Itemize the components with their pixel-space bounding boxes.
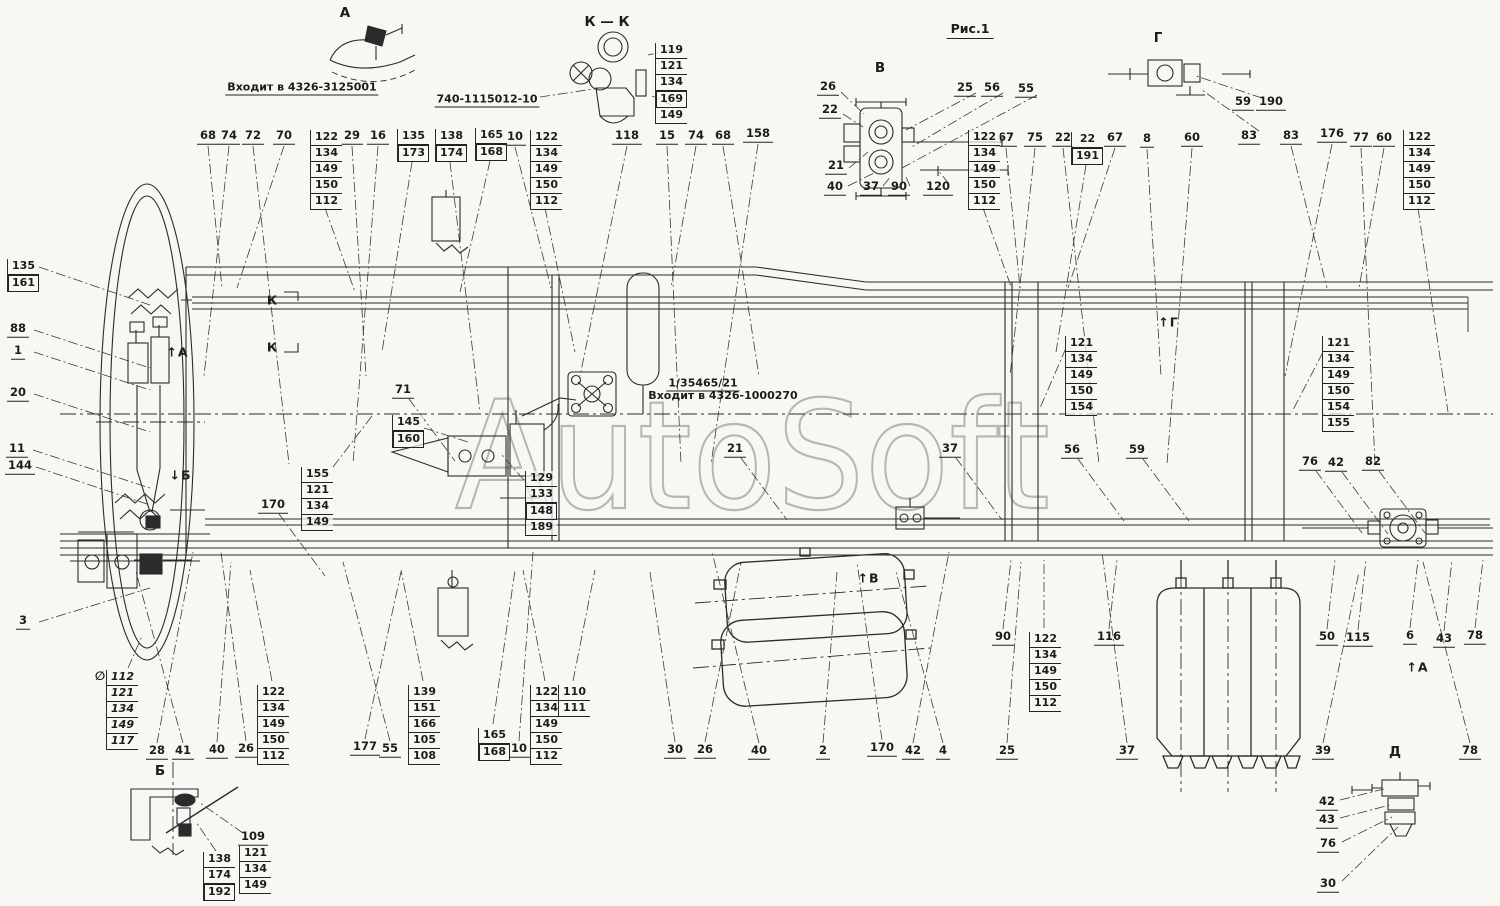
part-number: 149 xyxy=(969,162,1000,178)
part-number: 112 xyxy=(531,749,562,765)
part-number: 122 xyxy=(1404,130,1435,146)
callout-72: 72 xyxy=(242,130,264,145)
part-number: 149 xyxy=(656,108,687,124)
part-number: 149 xyxy=(1066,368,1097,384)
part-number: 149 xyxy=(240,878,271,894)
callout-68: 68 xyxy=(712,130,734,145)
part-number: 149 xyxy=(258,717,289,733)
callout-71: 71 xyxy=(392,384,414,399)
part-number: 165 xyxy=(476,128,507,144)
part-ref-stack: 165168 xyxy=(478,728,510,761)
part-ref-stack: 129133148189 xyxy=(525,471,557,536)
part-number: 174 xyxy=(436,145,467,162)
callout-158: 158 xyxy=(743,128,773,143)
part-number: 134 xyxy=(1066,352,1097,368)
callout-2: 2 xyxy=(816,745,830,760)
callout-26: 26 xyxy=(235,743,257,758)
callout-83: 83 xyxy=(1280,130,1302,145)
part-number: 117 xyxy=(107,734,138,750)
part-number: 151 xyxy=(409,701,440,717)
callout-37: 37 xyxy=(1116,745,1138,760)
part-number: 112 xyxy=(311,194,342,210)
callout-21: 21 xyxy=(724,443,746,458)
part-number: 122 xyxy=(311,130,342,146)
part-number: 161 xyxy=(8,275,39,292)
callout-78: 78 xyxy=(1459,745,1481,760)
callout-1: 1 xyxy=(11,345,25,360)
part-number: 112 xyxy=(1030,696,1061,712)
part-ref-stack: 122134149150112 xyxy=(257,685,289,765)
part-number: 155 xyxy=(1323,416,1354,432)
air-receiver-vertical-bank xyxy=(1157,560,1300,768)
section-mark-К: К xyxy=(267,340,277,355)
callout-8: 8 xyxy=(1140,133,1154,148)
up-arrow-icon: ↑ xyxy=(1158,315,1168,330)
part-number: 154 xyxy=(1323,400,1354,416)
part-ref-stack: 122134149150112 xyxy=(1403,130,1435,210)
callout-170: 170 xyxy=(867,742,897,757)
callout-50: 50 xyxy=(1316,631,1338,646)
frame-bottom-rail xyxy=(60,541,1493,555)
callout-40: 40 xyxy=(824,181,846,196)
part-number: 165 xyxy=(479,728,510,744)
callout-37: 37 xyxy=(860,181,882,196)
view-label-А: А xyxy=(340,5,350,21)
view-label-В: В xyxy=(875,60,885,76)
callout-42: 42 xyxy=(1325,457,1347,472)
part-number: 149 xyxy=(531,162,562,178)
part-ref-stack: 119121134169149 xyxy=(655,43,687,124)
callout-76: 76 xyxy=(1299,456,1321,471)
part-number: 129 xyxy=(526,471,557,487)
part-number: 150 xyxy=(1404,178,1435,194)
part-number: 134 xyxy=(107,702,138,718)
part-ref-stack: 122134149150112 xyxy=(310,130,342,210)
part-ref-stack: 165168 xyxy=(475,128,507,161)
part-ref-stack: 121134149150154 xyxy=(1065,336,1097,416)
arrow-letter: Б xyxy=(181,468,191,483)
part-number: 134 xyxy=(258,701,289,717)
air-receiver-horizontal xyxy=(712,548,916,707)
section-mark-К: К xyxy=(267,293,277,308)
callout-177: 177 xyxy=(350,741,380,756)
view-kk-assembly xyxy=(570,32,646,123)
part-number: 134 xyxy=(1030,648,1061,664)
part-number: 122 xyxy=(969,130,1000,146)
part-number: 148 xyxy=(526,503,557,520)
callout-39: 39 xyxy=(1312,745,1334,760)
part-number: 112 xyxy=(1404,194,1435,210)
part-ref-stack: 138174192 xyxy=(203,852,235,901)
callout-78: 78 xyxy=(1464,630,1486,645)
view-label-Б: Б xyxy=(155,763,165,779)
callout-30: 30 xyxy=(664,744,686,759)
part-ref-stack: 145160 xyxy=(392,415,424,448)
part-number: 189 xyxy=(526,520,557,536)
part-ref-stack: 135161 xyxy=(7,259,39,292)
callout-42: 42 xyxy=(1316,796,1338,811)
part-number: 150 xyxy=(969,178,1000,194)
callout-68: 68 xyxy=(197,130,219,145)
callout-29: 29 xyxy=(341,130,363,145)
drawing-note: Входит в 4326-1000270 xyxy=(646,389,799,403)
part-number: 149 xyxy=(311,162,342,178)
view-b-bracket-detail xyxy=(131,787,238,855)
arrow-letter: Г xyxy=(1170,315,1178,330)
part-number: 134 xyxy=(302,499,333,515)
figure-caption: Рис.1 xyxy=(947,21,994,39)
callout-40: 40 xyxy=(206,744,228,759)
pipe-bundle-bottom xyxy=(205,519,1490,525)
part-number: 150 xyxy=(258,733,289,749)
part-number: 173 xyxy=(398,145,429,162)
view-d-assembly xyxy=(1352,772,1430,836)
view-label-К—К: К — К xyxy=(585,14,630,30)
callout-77: 77 xyxy=(1350,132,1372,147)
part-number: 150 xyxy=(1030,680,1061,696)
callout-26: 26 xyxy=(817,81,839,96)
part-number: 135 xyxy=(8,259,39,275)
callout-90: 90 xyxy=(888,181,910,196)
part-number: 149 xyxy=(531,717,562,733)
part-number: 121 xyxy=(302,483,333,499)
callout-109: 109 xyxy=(238,831,268,846)
part-number: 110 xyxy=(559,685,590,701)
part-number: 150 xyxy=(531,178,562,194)
callout-20: 20 xyxy=(7,387,29,402)
part-ref-stack: 22191 xyxy=(1071,132,1103,165)
callout-28: 28 xyxy=(146,745,168,760)
part-number: 134 xyxy=(311,146,342,162)
arrow-letter: А xyxy=(178,345,188,360)
part-number: 192 xyxy=(204,884,235,901)
direction-arrow-А: ↑А xyxy=(166,345,187,360)
part-ref-stack: 135173 xyxy=(397,129,429,162)
callout-190: 190 xyxy=(1256,96,1286,111)
callout-40: 40 xyxy=(748,745,770,760)
callout-176: 176 xyxy=(1317,128,1347,143)
callout-43: 43 xyxy=(1433,633,1455,648)
callout-82: 82 xyxy=(1362,456,1384,471)
up-arrow-icon: ↑ xyxy=(857,571,867,586)
callout-55: 55 xyxy=(1015,83,1037,98)
arrow-letter: А xyxy=(1418,660,1428,675)
view-a-assembly xyxy=(330,24,415,68)
part-ref-stack: 122134149150112 xyxy=(968,130,1000,210)
part-ref-stack: 121134149150154155 xyxy=(1322,336,1354,432)
part-number: 134 xyxy=(969,146,1000,162)
callout-30: 30 xyxy=(1317,878,1339,893)
part-ref-stack: 110111 xyxy=(558,685,590,717)
part-number: 121 xyxy=(240,846,271,862)
part-number: 138 xyxy=(436,129,467,145)
air-dryer-cylinder xyxy=(627,273,659,385)
part-number: 150 xyxy=(1066,384,1097,400)
part-number: 149 xyxy=(107,718,138,734)
callout-55: 55 xyxy=(379,743,401,758)
callout-26: 26 xyxy=(694,744,716,759)
callout-144: 144 xyxy=(5,460,35,475)
section-cut-marks xyxy=(284,292,298,352)
part-number: 166 xyxy=(409,717,440,733)
callout-116: 116 xyxy=(1094,631,1124,646)
part-number: 145 xyxy=(393,415,424,431)
part-number: 121 xyxy=(656,59,687,75)
callout-88: 88 xyxy=(7,323,29,338)
part-ref-stack: 138174 xyxy=(435,129,467,162)
callout-25: 25 xyxy=(996,745,1018,760)
part-number: 154 xyxy=(1066,400,1097,416)
callout-120: 120 xyxy=(923,181,953,196)
part-ref-stack: 122134149150112 xyxy=(1029,632,1061,712)
callout-115: 115 xyxy=(1343,632,1373,647)
part-number: 122 xyxy=(531,130,562,146)
callout-4: 4 xyxy=(936,745,950,760)
part-ref-stack: 155121134149 xyxy=(301,467,333,531)
callout-74: 74 xyxy=(218,130,240,145)
part-number: 112 xyxy=(107,670,138,686)
callout-60: 60 xyxy=(1181,132,1203,147)
hose-zigzag xyxy=(128,289,192,314)
callout-118: 118 xyxy=(612,130,642,145)
part-number: 150 xyxy=(311,178,342,194)
callout-56: 56 xyxy=(981,82,1003,97)
part-number: 112 xyxy=(258,749,289,765)
callout-11: 11 xyxy=(6,443,28,458)
leader-lines-generated xyxy=(33,144,1483,743)
drawing-note: Входит в 4326-3125001 xyxy=(225,81,378,96)
part-number: 149 xyxy=(1323,368,1354,384)
callout-90: 90 xyxy=(992,631,1014,646)
callout-59: 59 xyxy=(1126,444,1148,459)
drawing-note: 740-1115012-10 xyxy=(435,93,540,108)
part-number: 122 xyxy=(1030,632,1061,648)
callout-15: 15 xyxy=(656,130,678,145)
up-arrow-icon: ↑ xyxy=(1406,660,1416,675)
direction-arrow-В: ↑В xyxy=(857,571,878,586)
callout-42: 42 xyxy=(902,745,924,760)
callout-6: 6 xyxy=(1403,630,1417,645)
part-number: 119 xyxy=(656,43,687,59)
part-number: 111 xyxy=(559,701,590,717)
pipe-bundle-top xyxy=(192,297,1468,332)
part-number: 149 xyxy=(1030,664,1061,680)
callout-43: 43 xyxy=(1316,814,1338,829)
diameter-mark: ∅ xyxy=(95,669,105,683)
callout-83: 83 xyxy=(1238,130,1260,145)
callout-10: 10 xyxy=(508,743,530,758)
part-number: 22 xyxy=(1072,132,1103,148)
callout-76: 76 xyxy=(1317,838,1339,853)
callout-170: 170 xyxy=(258,499,288,514)
callout-75: 75 xyxy=(1024,132,1046,147)
part-number: 169 xyxy=(656,91,687,108)
callout-37: 37 xyxy=(939,443,961,458)
callout-67: 67 xyxy=(1104,132,1126,147)
part-number: 134 xyxy=(1323,352,1354,368)
view-label-Д: Д xyxy=(1389,744,1401,760)
part-number: 134 xyxy=(240,862,271,878)
down-arrow-icon: ↓ xyxy=(169,468,179,483)
direction-arrow-Г: ↑Г xyxy=(1158,315,1177,330)
view-label-Г: Г xyxy=(1154,30,1163,46)
part-ref-stack: 139151166105108 xyxy=(408,685,440,765)
callout-22: 22 xyxy=(819,104,841,119)
callout-3: 3 xyxy=(16,615,30,630)
arrow-letter: В xyxy=(869,571,879,586)
up-arrow-icon: ↑ xyxy=(166,345,176,360)
direction-arrow-Б: ↓Б xyxy=(169,468,190,483)
part-number: 121 xyxy=(107,686,138,702)
part-number: 134 xyxy=(656,75,687,91)
part-number: 168 xyxy=(476,144,507,161)
direction-arrow-А: ↑А xyxy=(1406,660,1427,675)
part-number: 134 xyxy=(1404,146,1435,162)
part-number: 149 xyxy=(302,515,333,531)
part-number: 121 xyxy=(1323,336,1354,352)
callout-74: 74 xyxy=(685,130,707,145)
part-number: 112 xyxy=(531,194,562,210)
part-number: 150 xyxy=(1323,384,1354,400)
part-number: 174 xyxy=(204,868,235,884)
callout-60: 60 xyxy=(1373,132,1395,147)
callout-25: 25 xyxy=(954,82,976,97)
part-ref-stack: 112121134149117 xyxy=(106,670,138,750)
part-number: 122 xyxy=(258,685,289,701)
part-number: 149 xyxy=(1404,162,1435,178)
callout-41: 41 xyxy=(172,745,194,760)
part-ref-stack: 122134149150112 xyxy=(530,130,562,210)
part-number: 133 xyxy=(526,487,557,503)
part-number: 134 xyxy=(531,146,562,162)
part-number: 150 xyxy=(531,733,562,749)
technical-diagram-page: AutoSoft xyxy=(0,0,1500,906)
part-number: 121 xyxy=(1066,336,1097,352)
part-number: 112 xyxy=(969,194,1000,210)
callout-56: 56 xyxy=(1061,444,1083,459)
callout-10: 10 xyxy=(504,131,526,146)
part-number: 160 xyxy=(393,431,424,448)
callout-70: 70 xyxy=(273,130,295,145)
part-number: 168 xyxy=(479,744,510,761)
part-number: 191 xyxy=(1072,148,1103,165)
part-number: 108 xyxy=(409,749,440,765)
part-number: 105 xyxy=(409,733,440,749)
callout-16: 16 xyxy=(367,130,389,145)
part-number: 138 xyxy=(204,852,235,868)
callout-21: 21 xyxy=(825,160,847,175)
view-g-assembly xyxy=(1108,60,1250,95)
part-ref-stack: 121134149 xyxy=(239,846,271,894)
part-number: 139 xyxy=(409,685,440,701)
part-number: 155 xyxy=(302,467,333,483)
part-number: 135 xyxy=(398,129,429,145)
callout-59: 59 xyxy=(1232,96,1254,111)
